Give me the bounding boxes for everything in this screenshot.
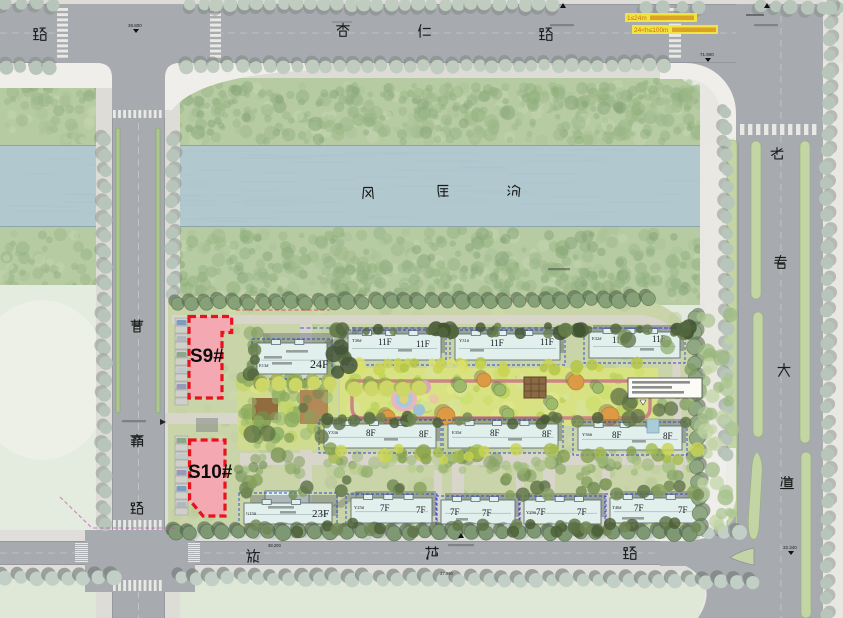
svg-text:8F: 8F bbox=[612, 430, 622, 440]
svg-text:E32#: E32# bbox=[592, 336, 602, 341]
svg-text:E35#: E35# bbox=[452, 430, 462, 435]
svg-text:32.340: 32.340 bbox=[783, 545, 797, 550]
svg-text:38.200: 38.200 bbox=[268, 543, 281, 548]
svg-text:11F: 11F bbox=[490, 338, 504, 348]
svg-text:24F: 24F bbox=[310, 357, 329, 371]
svg-text:8F: 8F bbox=[366, 428, 376, 438]
svg-text:11F: 11F bbox=[378, 337, 392, 347]
svg-text:37.960: 37.960 bbox=[440, 571, 453, 576]
svg-text:7F: 7F bbox=[577, 507, 587, 517]
svg-text:7F: 7F bbox=[634, 503, 644, 513]
svg-text:11F: 11F bbox=[540, 337, 554, 347]
svg-text:Y33#: Y33# bbox=[328, 430, 339, 435]
svg-text:8F: 8F bbox=[542, 429, 552, 439]
svg-text:Y31#: Y31# bbox=[459, 338, 470, 343]
svg-text:11F: 11F bbox=[416, 339, 430, 349]
svg-text:Y25#: Y25# bbox=[354, 505, 365, 510]
svg-text:T30#: T30# bbox=[352, 338, 362, 343]
svg-text:7F: 7F bbox=[416, 505, 426, 515]
svg-text:Y29#: Y29# bbox=[526, 510, 537, 515]
svg-text:1≤24m: 1≤24m bbox=[627, 15, 647, 22]
svg-text:S9#: S9# bbox=[190, 346, 224, 367]
svg-text:Y36#: Y36# bbox=[582, 432, 593, 437]
svg-text:7F: 7F bbox=[380, 503, 390, 513]
svg-text:8F: 8F bbox=[419, 429, 429, 439]
svg-text:71.900: 71.900 bbox=[700, 52, 714, 57]
svg-text:7F: 7F bbox=[678, 505, 688, 515]
svg-text:38.800: 38.800 bbox=[128, 23, 142, 28]
svg-text:7F: 7F bbox=[536, 507, 546, 517]
svg-text:7F: 7F bbox=[450, 507, 460, 517]
svg-text:E13#: E13# bbox=[259, 363, 269, 368]
svg-text:S10#: S10# bbox=[188, 462, 233, 483]
svg-text:24<h≤100m: 24<h≤100m bbox=[634, 27, 668, 34]
svg-text:23F: 23F bbox=[312, 508, 329, 520]
svg-text:T40#: T40# bbox=[612, 505, 622, 510]
svg-text:7F: 7F bbox=[482, 508, 492, 518]
svg-text:8F: 8F bbox=[490, 428, 500, 438]
svg-text:8F: 8F bbox=[663, 431, 673, 441]
svg-text:G15#: G15# bbox=[246, 511, 257, 516]
